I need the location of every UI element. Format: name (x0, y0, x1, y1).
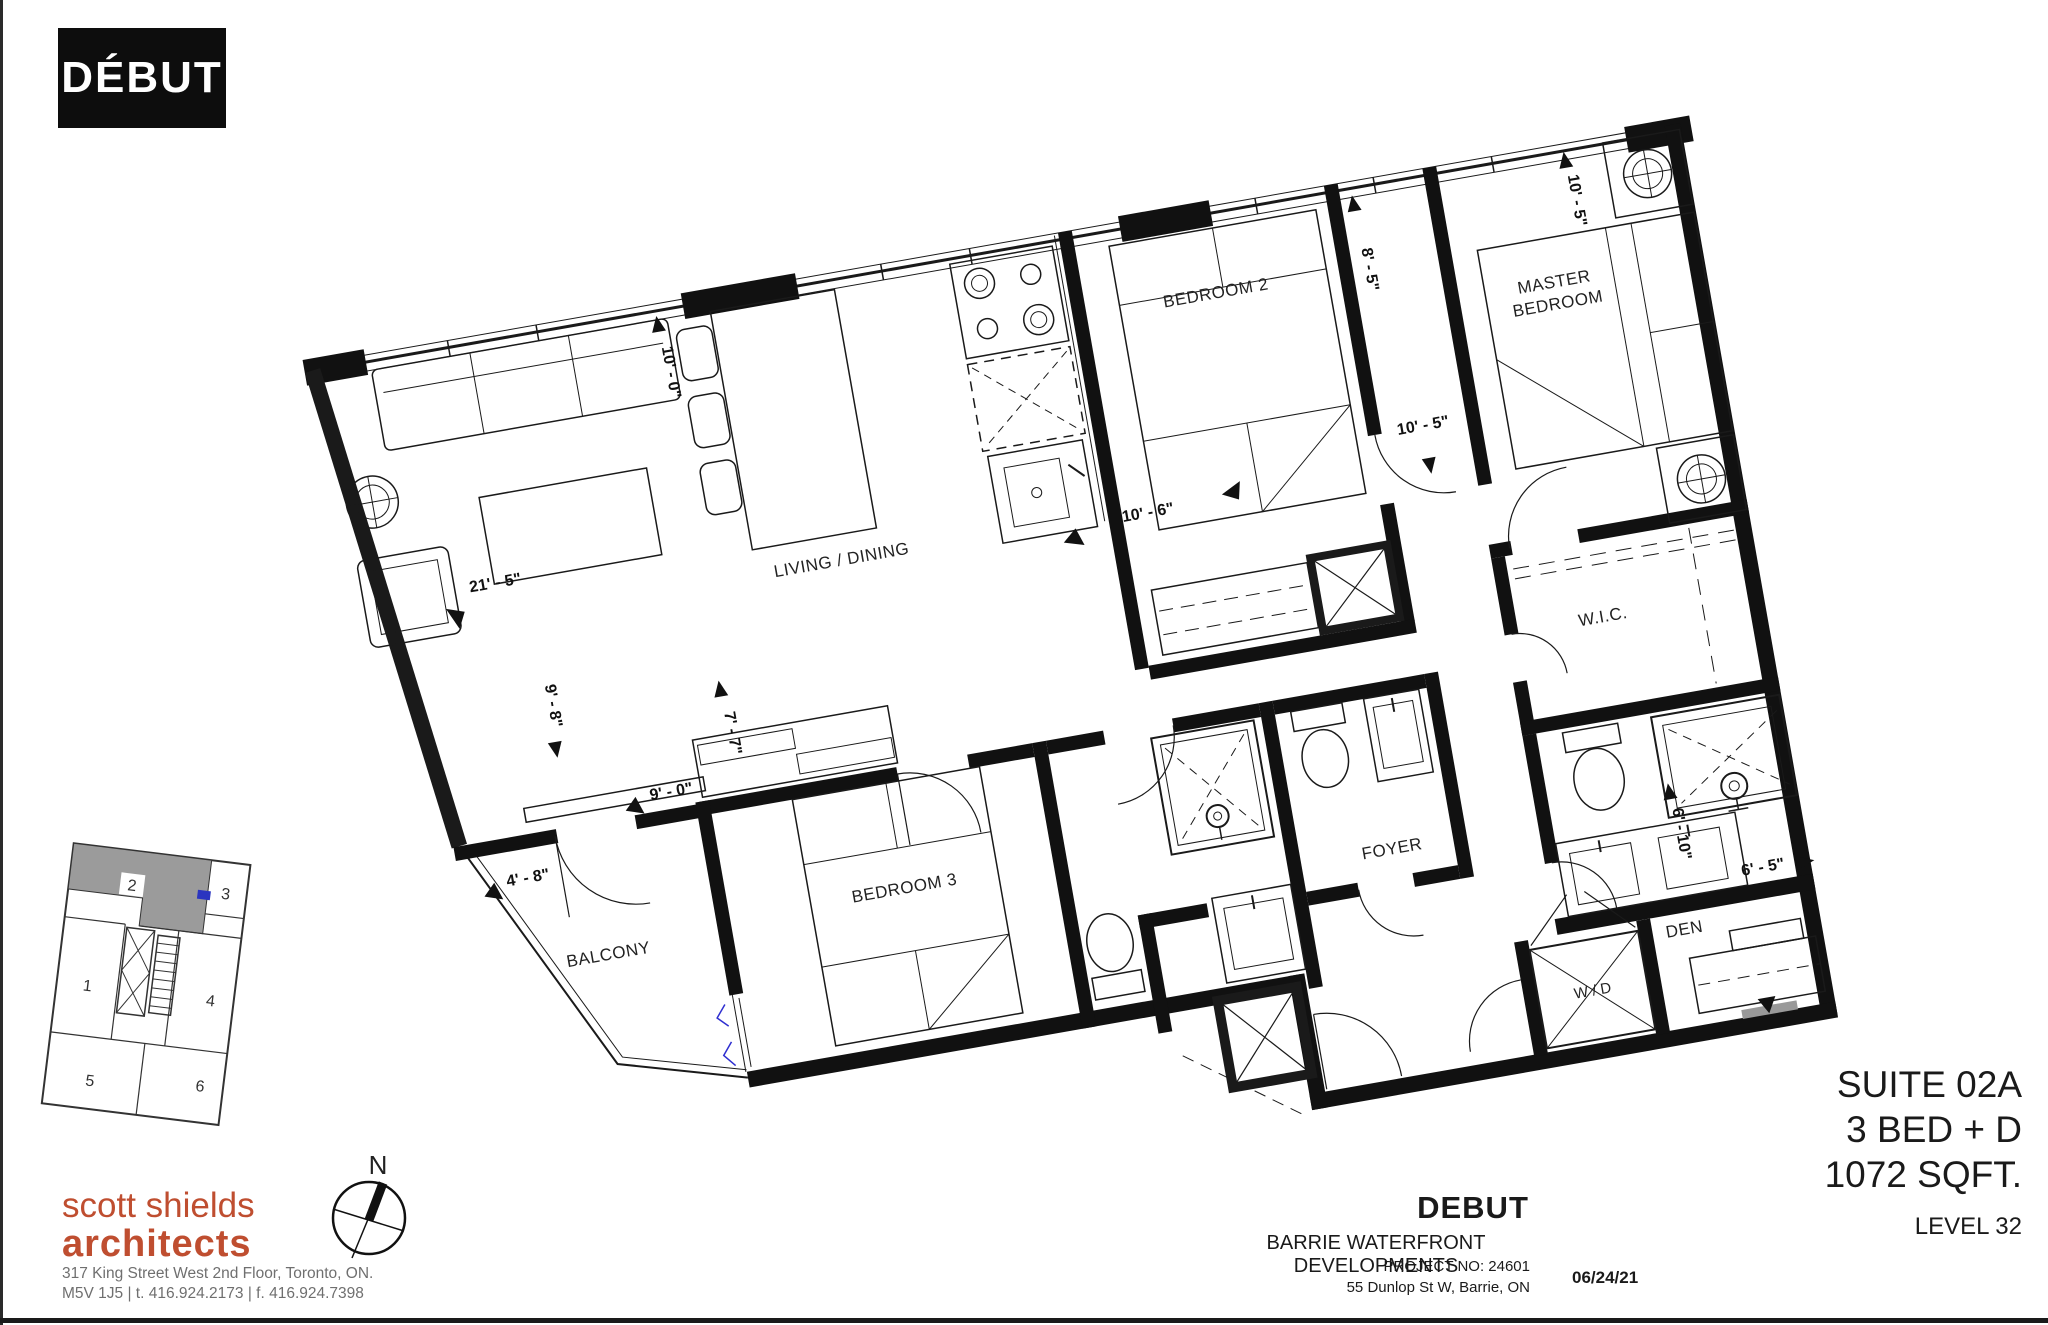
plan-canvas: LIVING / DINING BEDROOM 2 MASTER BEDROOM… (0, 0, 2048, 1325)
dim-den-width: 6' - 5" (1740, 856, 1786, 880)
interior-walls (367, 123, 1836, 1235)
bedroom3-furniture (701, 767, 1025, 1072)
keyplan-core (116, 927, 180, 1019)
dim-balcony-width: 4' - 8" (505, 866, 551, 890)
dim-master-width: 10' - 5" (1564, 173, 1590, 227)
dim-bedroom2-width: 10' - 6" (1121, 500, 1175, 526)
keyplan-unit-5: 6 (195, 1078, 206, 1096)
keyplan-unit-4: 4 (205, 993, 216, 1011)
bedroom2-furniture (1109, 210, 1366, 530)
dim-bedroom3-depth: 7' - 7" (720, 710, 744, 756)
label-foyer: FOYER (1360, 834, 1423, 863)
keyplan: 1 2 3 4 6 5 (42, 843, 251, 1125)
left-angled-wall (313, 360, 460, 857)
dim-bedroom3-width: 9' - 0" (648, 780, 694, 804)
label-bedroom2: BEDROOM 2 (1162, 274, 1270, 311)
north-label: N (369, 1150, 388, 1180)
slider-direction-arrows (715, 1004, 736, 1067)
keyplan-unit-1: 1 (82, 978, 93, 996)
kitchen-fixtures (948, 236, 1105, 544)
label-living-dining: LIVING / DINING (772, 539, 910, 581)
label-wic: W.I.C. (1577, 603, 1629, 630)
unit-floor-plan: LIVING / DINING BEDROOM 2 MASTER BEDROOM… (303, 116, 1849, 1265)
dim-balcony-depth: 9' - 8" (541, 683, 565, 729)
dim-bedroom2-depth: 8' - 5" (1357, 247, 1381, 293)
keyplan-marker (197, 890, 211, 901)
dim-master-depth: 10' - 5" (1396, 413, 1450, 439)
label-bedroom3: BEDROOM 3 (850, 869, 958, 906)
north-compass: N (333, 1150, 405, 1258)
keyplan-unit-6: 5 (84, 1073, 95, 1091)
floorplan-sheet: DÉBUT SUITE 02A 3 BED + D 1072 SQFT. LEV… (0, 0, 2048, 1325)
keyplan-unit-3: 3 (220, 886, 231, 904)
label-den: DEN (1664, 917, 1704, 942)
main-bath-fixtures (1053, 719, 1306, 1006)
label-balcony: BALCONY (565, 938, 652, 971)
dim-living-wall: 21' - 5" (468, 571, 522, 597)
